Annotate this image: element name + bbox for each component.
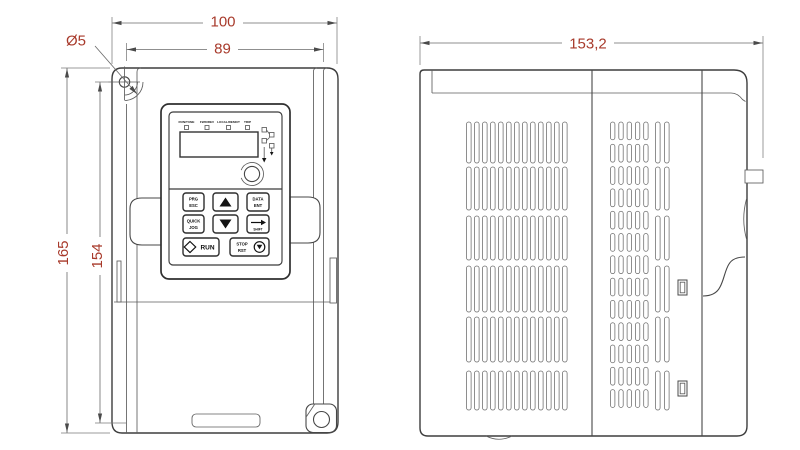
dim-label-89: 89 <box>214 41 231 58</box>
keypad-bezel <box>161 104 290 279</box>
vent-grid-left <box>467 122 568 410</box>
data-ent-label-1: DATA <box>252 197 263 202</box>
side-outer-body <box>420 70 747 436</box>
led-indicator-3 <box>227 126 231 130</box>
knob-icon <box>241 163 263 186</box>
keypad: RUN/TUNE FWD/REV LOCAL/REMOT TRIP <box>161 104 290 279</box>
front-seam-right-outer <box>324 68 328 433</box>
step-notch-right <box>330 258 337 303</box>
bottom-slot <box>192 414 260 427</box>
dim-label-hole: Ø5 <box>66 33 86 50</box>
vent-grid-right-fine <box>611 122 649 407</box>
quick-jog-label-2: JOG <box>189 225 198 230</box>
release-clip-left <box>130 198 161 245</box>
quick-jog-label-1: QUICK <box>187 219 201 224</box>
dim-label-153-2: 153,2 <box>569 36 607 53</box>
vent-grid-right-tall <box>656 122 670 410</box>
inverter-dimension-drawing: RUN/TUNE FWD/REV LOCAL/REMOT TRIP <box>0 0 800 450</box>
dim-width-89: 89 <box>127 40 324 62</box>
release-clip-right <box>290 197 320 243</box>
led-label-run-tune: RUN/TUNE <box>179 120 195 124</box>
edge-bump-arc <box>744 199 747 239</box>
led-indicator-4 <box>246 126 250 130</box>
side-view <box>420 70 763 439</box>
front-view: RUN/TUNE FWD/REV LOCAL/REMOT TRIP <box>109 67 339 434</box>
prg-esc-label-1: PRG <box>189 197 198 202</box>
shift-label: SHIFT <box>253 228 262 232</box>
keypad-buttons: PRG ESC DATA ENT QUICK JOG SHIFT RUN <box>183 193 269 256</box>
hook-cutout <box>703 257 745 296</box>
stop-label-1: STOP <box>236 242 248 247</box>
stop-label-2: RST <box>238 248 247 253</box>
dim-height-154: 154 <box>89 82 126 423</box>
led-label-local-remot: LOCAL/REMOT <box>217 120 240 124</box>
bottom-mounting-ear <box>306 404 337 433</box>
dim-hole-diameter: Ø5 <box>66 33 137 95</box>
led-indicator-1 <box>185 126 189 130</box>
prg-esc-label-2: ESC <box>189 203 198 208</box>
led-label-fwd-rev: FWD/REV <box>200 120 215 124</box>
run-label: RUN <box>200 245 214 252</box>
side-clip-lower <box>678 381 687 396</box>
led-indicator-2 <box>205 126 209 130</box>
technical-drawing-canvas: RUN/TUNE FWD/REV LOCAL/REMOT TRIP <box>0 0 800 450</box>
display-screen <box>180 132 258 157</box>
dim-label-100: 100 <box>210 14 235 31</box>
front-seam-left-outer <box>137 68 141 433</box>
led-label-trip: TRIP <box>244 120 251 124</box>
step-notch-left <box>117 261 121 302</box>
din-tab <box>745 170 763 183</box>
dim-label-165: 165 <box>55 240 72 265</box>
data-ent-label-2: ENT <box>254 203 263 208</box>
dim-label-154: 154 <box>89 243 106 268</box>
front-seam-right-inner <box>314 68 318 433</box>
unit-indicator-icons <box>262 128 274 163</box>
side-clip-upper <box>678 280 687 295</box>
